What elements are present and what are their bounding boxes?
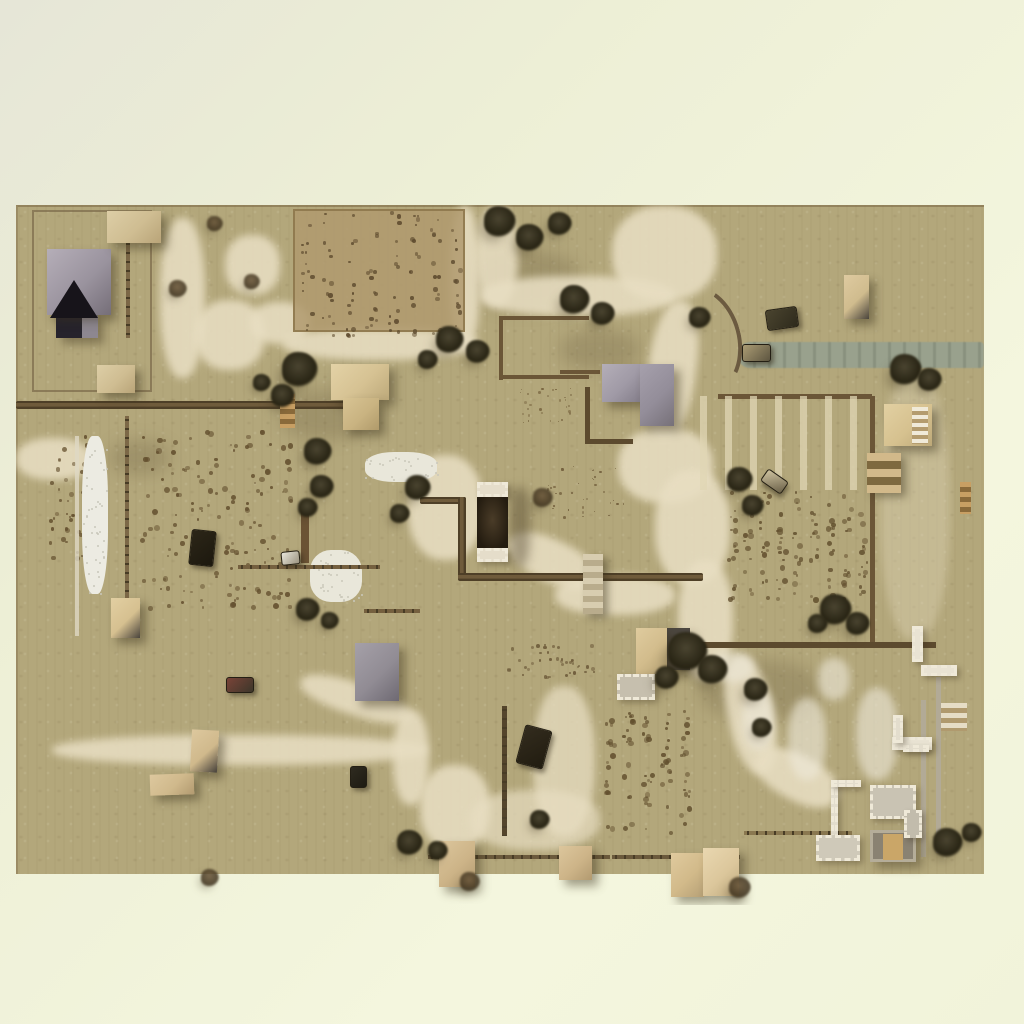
crop-speckle — [200, 584, 205, 589]
crop-speckle — [389, 315, 391, 317]
crop-speckle — [167, 555, 169, 557]
farmhouse-tan-wing — [343, 398, 379, 430]
crop-speckle — [603, 491, 605, 493]
crop-speckle — [230, 567, 233, 570]
crop-speckle — [549, 658, 552, 661]
crop-speckle — [64, 478, 68, 482]
crop-speckle — [531, 646, 534, 649]
crop-speckle — [308, 224, 311, 227]
crop-speckle — [766, 501, 770, 505]
crop-speckle — [351, 299, 354, 302]
tree-canopy-icon — [405, 475, 431, 501]
crop-speckle — [767, 494, 772, 499]
crop-speckle — [375, 232, 379, 236]
crop-speckle — [415, 224, 417, 226]
crop-speckle — [246, 435, 251, 440]
crop-speckle — [148, 606, 152, 610]
crop-speckle — [555, 493, 556, 494]
crop-speckle — [227, 593, 231, 597]
crop-speckle — [565, 674, 568, 677]
crop-speckle — [573, 671, 576, 674]
ruin-white-row-2 — [921, 665, 957, 676]
crop-speckle — [524, 401, 527, 404]
ruin-wall-small-v — [893, 715, 903, 743]
crop-speckle — [164, 487, 170, 493]
crop-speckle — [171, 472, 174, 475]
gravel-pebble — [94, 526, 96, 528]
crop-speckle — [528, 420, 529, 421]
wall-right-horizontal — [700, 642, 936, 648]
crop-speckle — [51, 527, 54, 530]
gravel-pebble — [100, 462, 102, 464]
gravel-pebble — [94, 450, 96, 452]
crop-speckle — [727, 558, 731, 562]
tree-canopy-icon — [169, 280, 187, 298]
crop-speckle — [563, 516, 566, 519]
crop-speckle — [815, 554, 819, 558]
gravel-pebble — [320, 560, 322, 562]
crop-speckle — [685, 731, 689, 735]
crop-speckle — [451, 229, 454, 232]
shed-bl-2 — [150, 773, 195, 796]
crop-speckle — [254, 549, 256, 551]
crop-speckle — [810, 496, 812, 498]
crop-speckle — [323, 222, 325, 224]
gravel-pebble — [95, 506, 97, 508]
crop-speckle — [260, 492, 263, 495]
crop-speckle — [528, 414, 530, 416]
crop-speckle — [795, 491, 797, 493]
tree-canopy-icon — [846, 612, 870, 636]
crop-speckle — [348, 261, 351, 264]
crop-speckle — [163, 439, 166, 442]
crop-speckle — [669, 831, 674, 836]
crop-speckle — [433, 287, 437, 291]
gravel-pebble — [391, 476, 393, 478]
crop-speckle — [390, 211, 393, 214]
crop-speckle — [550, 487, 552, 489]
gravel-pebble — [357, 574, 359, 576]
crop-speckle — [679, 813, 684, 818]
crop-speckle — [582, 511, 585, 514]
crop-speckle — [776, 597, 780, 601]
crop-speckle — [523, 422, 524, 423]
crop-speckle — [352, 292, 355, 295]
ruin-wall-small-h — [903, 745, 929, 752]
crop-speckle — [456, 304, 461, 309]
crop-speckle — [863, 575, 866, 578]
crop-speckle — [249, 526, 252, 529]
crop-speckle — [347, 304, 350, 307]
pale-blotch-4 — [818, 658, 850, 700]
crop-speckle — [861, 566, 863, 568]
gravel-pebble — [106, 449, 108, 451]
crop-speckle — [246, 502, 249, 505]
crop-speckle — [564, 397, 565, 398]
crop-speckle — [683, 789, 685, 791]
gravel-pebble — [343, 600, 345, 602]
crop-speckle — [765, 579, 768, 582]
crop-speckle — [683, 822, 687, 826]
crop-speckle — [594, 484, 597, 487]
crop-speckle — [277, 595, 281, 599]
crop-speckle — [844, 554, 848, 558]
crop-speckle — [172, 487, 178, 493]
crop-speckle — [328, 249, 331, 252]
gravel-pebble — [106, 468, 108, 470]
crop-speckle — [827, 541, 832, 546]
crop-speckle — [301, 272, 304, 275]
crop-speckle — [207, 504, 210, 507]
crop-speckle — [301, 244, 303, 246]
crop-speckle — [810, 536, 812, 538]
crop-speckle — [177, 493, 181, 497]
crop-speckle — [610, 502, 612, 504]
crop-speckle — [65, 528, 70, 533]
crop-speckle — [253, 521, 257, 525]
crop-speckle — [365, 326, 368, 329]
gravel-pebble — [370, 460, 372, 462]
crop-speckle — [53, 517, 55, 519]
crop-speckle — [796, 574, 798, 576]
crop-speckle — [613, 500, 614, 501]
crop-speckle — [200, 599, 203, 602]
crop-speckle — [594, 511, 595, 512]
crop-speckle — [550, 420, 552, 422]
crop-speckle — [571, 492, 572, 493]
crop-speckle — [66, 513, 68, 515]
crop-speckle — [641, 782, 647, 788]
crop-speckle — [582, 516, 584, 518]
tree-canopy-icon — [933, 828, 963, 858]
gravel-pebble — [103, 557, 105, 559]
crop-speckle — [527, 668, 529, 670]
crop-speckle — [642, 723, 648, 729]
crop-speckle — [369, 317, 373, 321]
pale-blotch-3 — [788, 698, 826, 780]
crop-speckle — [780, 537, 783, 540]
gravel-pebble — [103, 540, 105, 542]
crop-speckle — [416, 217, 421, 222]
crop-speckle — [684, 722, 690, 728]
crop-speckle — [552, 389, 554, 391]
crop-speckle — [179, 575, 182, 578]
crop-speckle — [572, 662, 574, 664]
crop-speckle — [191, 502, 194, 505]
crop-speckle — [191, 508, 194, 511]
crop-speckle — [330, 299, 334, 303]
gravel-pebble — [91, 454, 93, 456]
crop-speckle — [65, 541, 68, 544]
crop-speckle — [393, 296, 396, 299]
crop-speckle — [748, 533, 754, 539]
path-bottom-road — [52, 735, 427, 765]
crop-speckle — [592, 470, 593, 471]
tree-canopy-icon — [752, 718, 772, 738]
crop-speckle — [568, 509, 569, 510]
tree-canopy-icon — [390, 504, 410, 524]
crop-speckle — [811, 519, 814, 522]
crop-speckle — [809, 558, 813, 562]
crop-speckle — [410, 296, 414, 300]
crop-speckle — [793, 532, 796, 535]
crop-speckle — [681, 736, 686, 741]
boat-on-stream — [742, 344, 771, 362]
gravel-pebble — [336, 574, 338, 576]
crop-speckle — [199, 479, 205, 485]
tree-canopy-icon — [253, 374, 271, 392]
crop-speckle — [849, 507, 854, 512]
crop-speckle — [455, 248, 457, 250]
gravel-pebble — [97, 533, 99, 535]
crop-speckle — [197, 518, 199, 520]
gravel-pebble — [86, 516, 88, 518]
crop-speckle — [604, 783, 609, 788]
crop-speckle — [583, 499, 584, 500]
gravel-pebble — [341, 580, 343, 582]
gravel-pebble — [323, 590, 325, 592]
crop-speckle — [780, 565, 785, 570]
crop-speckle — [152, 578, 156, 582]
crop-speckle — [566, 406, 568, 408]
enclosure-left — [499, 316, 503, 380]
crop-speckle — [605, 780, 608, 783]
crop-speckle — [777, 546, 781, 550]
crop-speckle — [778, 551, 782, 555]
crop-speckle — [860, 521, 866, 527]
crop-speckle — [373, 270, 377, 274]
gravel-pebble — [98, 576, 100, 578]
crop-speckle — [454, 279, 459, 284]
crop-speckle — [438, 239, 442, 243]
tree-canopy-icon — [548, 212, 572, 236]
vineyard-bottom — [598, 710, 693, 832]
crop-speckle — [730, 516, 732, 518]
crop-speckle — [541, 388, 543, 390]
crop-speckle — [816, 548, 819, 551]
crop-speckle — [831, 533, 835, 537]
fence-vineyard-west — [502, 706, 507, 836]
crop-speckle — [244, 551, 247, 554]
crop-speckle — [559, 399, 562, 402]
crop-speckle — [548, 485, 549, 486]
crop-speckle — [797, 507, 802, 512]
crop-speckle — [645, 828, 647, 830]
crop-speckle — [622, 774, 627, 779]
tree-canopy-icon — [962, 823, 982, 843]
shed-topleft-1 — [107, 211, 161, 243]
crop-speckle — [591, 667, 595, 671]
crop-speckle — [205, 430, 210, 435]
tree-canopy-icon — [304, 438, 332, 466]
crop-speckle — [681, 746, 684, 749]
crop-speckle — [370, 324, 373, 327]
crop-speckle — [797, 543, 803, 549]
crop-speckle — [507, 668, 510, 671]
crop-speckle — [397, 214, 402, 219]
gravel-pebble — [389, 460, 391, 462]
tree-canopy-icon — [689, 307, 711, 329]
crop-speckle — [375, 319, 378, 322]
crop-speckle — [794, 555, 798, 559]
crop-speckle — [668, 779, 673, 784]
garden-center-2 — [545, 463, 623, 521]
crop-speckle — [389, 329, 392, 332]
crop-speckle — [541, 412, 543, 414]
crop-speckle — [285, 459, 291, 465]
crop-speckle — [258, 524, 261, 527]
crop-speckle — [609, 742, 613, 746]
crop-speckle — [859, 585, 862, 588]
ruin-wall-west-v — [831, 780, 838, 840]
crop-speckle — [352, 283, 356, 287]
tank — [765, 306, 800, 331]
car-dark-bottom — [350, 766, 367, 788]
crop-speckle — [796, 502, 798, 504]
ruin-floor-southwest — [816, 835, 860, 861]
crop-speckle — [776, 579, 778, 581]
crop-speckle — [688, 795, 691, 798]
crop-speckle — [733, 584, 737, 588]
crop-speckle — [669, 771, 673, 775]
crop-speckle — [143, 532, 147, 536]
crop-speckle — [432, 232, 437, 237]
crop-speckle — [623, 826, 628, 831]
crop-speckle — [527, 393, 529, 395]
tree-canopy-icon — [282, 352, 318, 388]
crop-speckle — [437, 219, 439, 221]
gravel-pebble — [372, 477, 374, 479]
tree-canopy-icon — [530, 810, 550, 830]
crop-speckle — [793, 592, 796, 595]
crop-speckle — [261, 465, 265, 469]
gravel-pebble — [427, 475, 429, 477]
farm-right-ladder — [912, 407, 928, 444]
crop-speckle — [556, 657, 560, 661]
stream — [738, 342, 984, 368]
crop-speckle — [650, 781, 652, 783]
crop-speckle — [582, 506, 585, 509]
crop-speckle — [866, 561, 868, 563]
crop-speckle — [728, 597, 733, 602]
crop-speckle — [287, 578, 291, 582]
crop-speckle — [305, 263, 307, 265]
crop-speckle — [156, 451, 159, 454]
crop-speckle — [778, 588, 780, 590]
white-cart — [280, 550, 300, 566]
wrecked-vehicle-1 — [188, 529, 217, 567]
crop-speckle — [565, 661, 568, 664]
crop-speckle — [828, 585, 832, 589]
crop-speckle — [67, 500, 69, 502]
wall-right-vertical — [870, 396, 875, 648]
ruin-platform — [941, 703, 967, 731]
crop-speckle — [605, 722, 609, 726]
crop-speckle — [608, 515, 609, 516]
gravel-pebble — [353, 572, 355, 574]
crop-speckle — [814, 523, 818, 527]
gravel-pebble — [97, 571, 99, 573]
crop-speckle — [539, 659, 542, 662]
crop-speckle — [553, 486, 556, 489]
crop-speckle — [151, 468, 153, 470]
tree-canopy-icon — [207, 216, 223, 232]
gravel-pebble — [100, 593, 102, 595]
crop-speckle — [352, 214, 355, 217]
crop-speckle — [625, 716, 628, 719]
gravel-pebble — [405, 469, 407, 471]
crop-speckle — [332, 322, 335, 325]
gravel-pebble — [83, 523, 85, 525]
crop-speckle — [750, 592, 754, 596]
crop-speckle — [573, 466, 575, 468]
crop-speckle — [413, 215, 416, 218]
crop-speckle — [687, 806, 692, 811]
crop-speckle — [201, 510, 203, 512]
crop-speckle — [647, 803, 651, 807]
pond-stone-bottom — [477, 548, 508, 562]
crop-speckle — [306, 329, 308, 331]
crop-speckle — [199, 507, 203, 511]
gravel-pebble — [95, 559, 97, 561]
crop-speckle — [310, 275, 315, 280]
crop-speckle — [816, 535, 820, 539]
crop-speckle — [269, 443, 272, 446]
gravel-pebble — [318, 569, 320, 571]
crop-speckle — [642, 732, 646, 736]
crop-speckle — [569, 413, 571, 415]
crop-speckle — [168, 548, 171, 551]
shed-topleft-2 — [97, 365, 135, 393]
crop-speckle — [56, 467, 61, 472]
crop-speckle — [59, 499, 62, 502]
crop-speckle — [306, 242, 309, 245]
crop-speckle — [779, 541, 782, 544]
crop-speckle — [265, 469, 270, 474]
crop-speckle — [71, 514, 74, 517]
gravel-pebble — [398, 458, 400, 460]
crop-speckle — [458, 268, 462, 272]
tree-canopy-icon — [484, 206, 516, 238]
crop-speckle — [607, 791, 612, 796]
crop-speckle — [58, 488, 60, 490]
crop-speckle — [629, 822, 634, 827]
ruin-white-wall-n — [912, 626, 923, 662]
crop-speckle — [324, 213, 326, 215]
gravel-pebble — [347, 552, 349, 554]
crop-speckle — [626, 729, 628, 731]
crop-speckle — [858, 512, 863, 517]
crop-speckle — [664, 760, 668, 764]
wall-west-of-house — [560, 370, 600, 374]
tree-canopy-icon — [201, 869, 219, 887]
crop-speckle — [273, 603, 279, 609]
crop-speckle — [760, 570, 765, 575]
crop-speckle — [196, 460, 201, 465]
crop-speckle — [259, 477, 265, 483]
gravel-pebble — [97, 545, 99, 547]
crop-speckle — [799, 557, 804, 562]
crop-speckle — [733, 528, 739, 534]
shed-topright — [844, 275, 869, 319]
gravel-pebble — [437, 474, 439, 476]
crop-speckle — [233, 449, 236, 452]
shed-bl-1 — [190, 729, 219, 772]
crop-speckle — [527, 408, 529, 410]
crop-speckle — [214, 571, 219, 576]
crop-speckle — [665, 727, 668, 730]
pond-water — [477, 497, 508, 548]
